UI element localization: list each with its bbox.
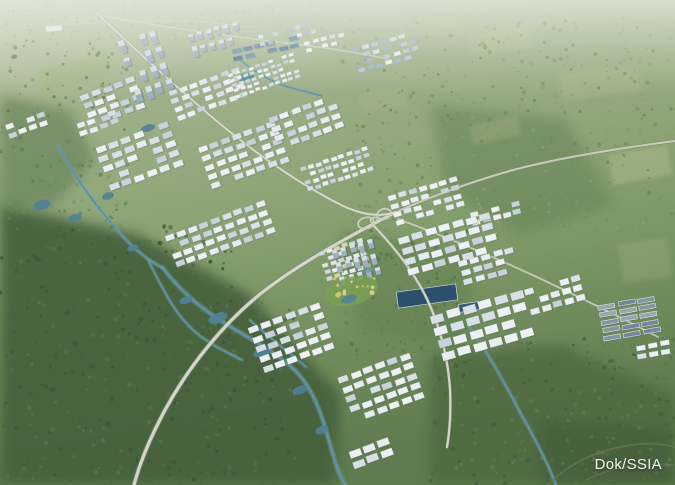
aerial-render-image: Dok/SSIA (0, 0, 675, 485)
photo-credit: Dok/SSIA (595, 456, 662, 473)
scene-canvas (0, 0, 675, 485)
haze-layer (0, 0, 675, 95)
